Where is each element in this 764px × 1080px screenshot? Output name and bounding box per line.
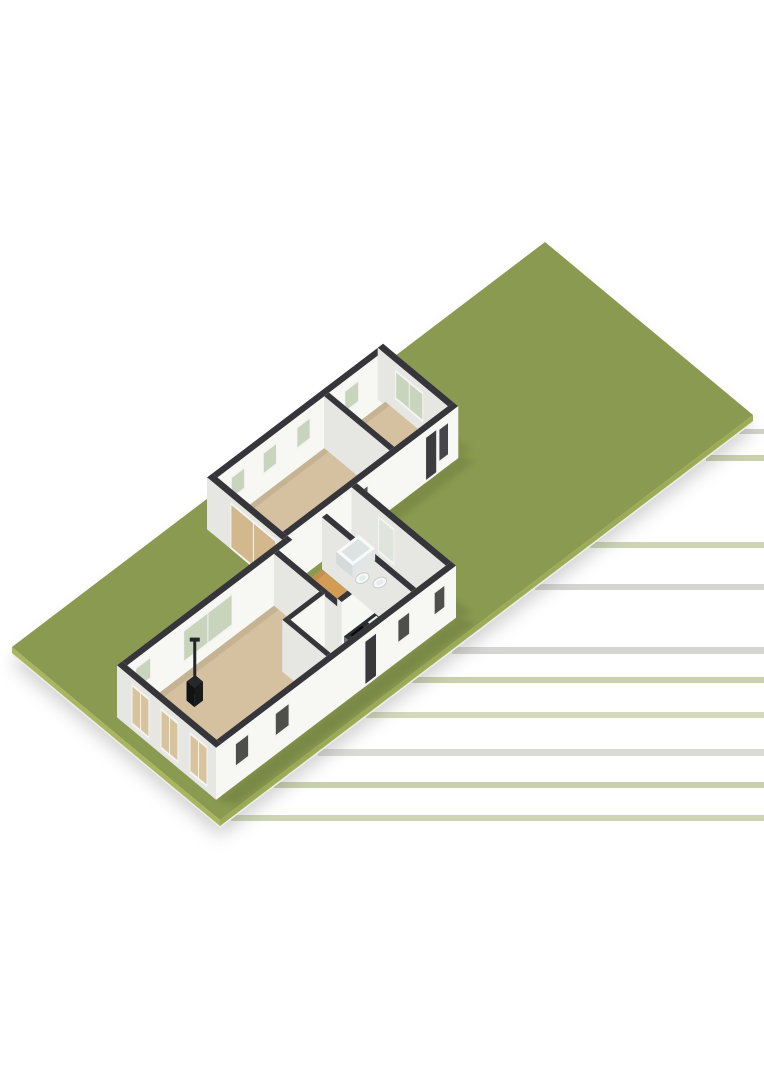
floorplan-3d-render bbox=[0, 0, 764, 1080]
render-artifact-stripe bbox=[412, 677, 764, 683]
render-artifact-stripe bbox=[274, 782, 764, 788]
blockB-back-door bbox=[364, 631, 377, 688]
render-artifact-stripe bbox=[231, 815, 764, 821]
render-artifact-stripe bbox=[590, 542, 764, 548]
render-artifact-stripe bbox=[535, 584, 764, 590]
blockA-entry-door bbox=[425, 427, 437, 483]
render-artifact-stripe bbox=[452, 647, 764, 654]
floorplan-3d-page bbox=[0, 0, 764, 1080]
render-artifact-stripe bbox=[318, 749, 764, 756]
render-artifact-stripe bbox=[366, 712, 764, 718]
